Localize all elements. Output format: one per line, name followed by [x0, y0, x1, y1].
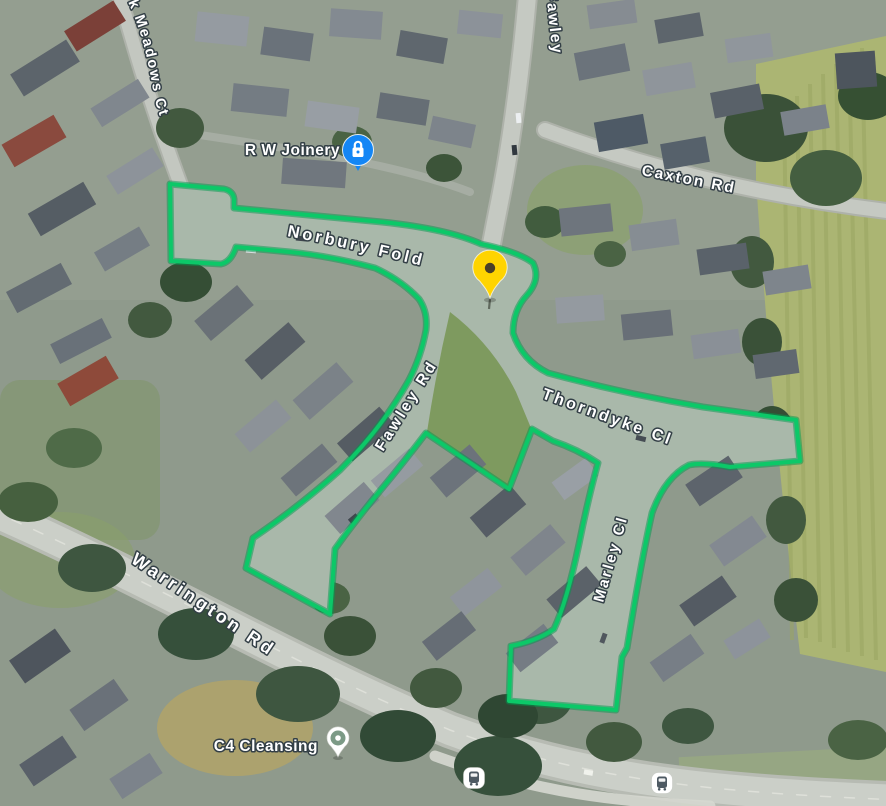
bus-stop-icon-east[interactable] [652, 773, 673, 794]
poi-label-c4-cleansing: C4 Cleansing [214, 738, 318, 755]
satellite-map[interactable]: k Meadows Ct Fawley Caxton Rd Norbury Fo… [0, 0, 886, 806]
pin-center-dot [485, 263, 495, 273]
poi-label-rw-joinery: R W Joinery [245, 142, 340, 159]
bus-stop-icon-west[interactable] [464, 768, 485, 789]
